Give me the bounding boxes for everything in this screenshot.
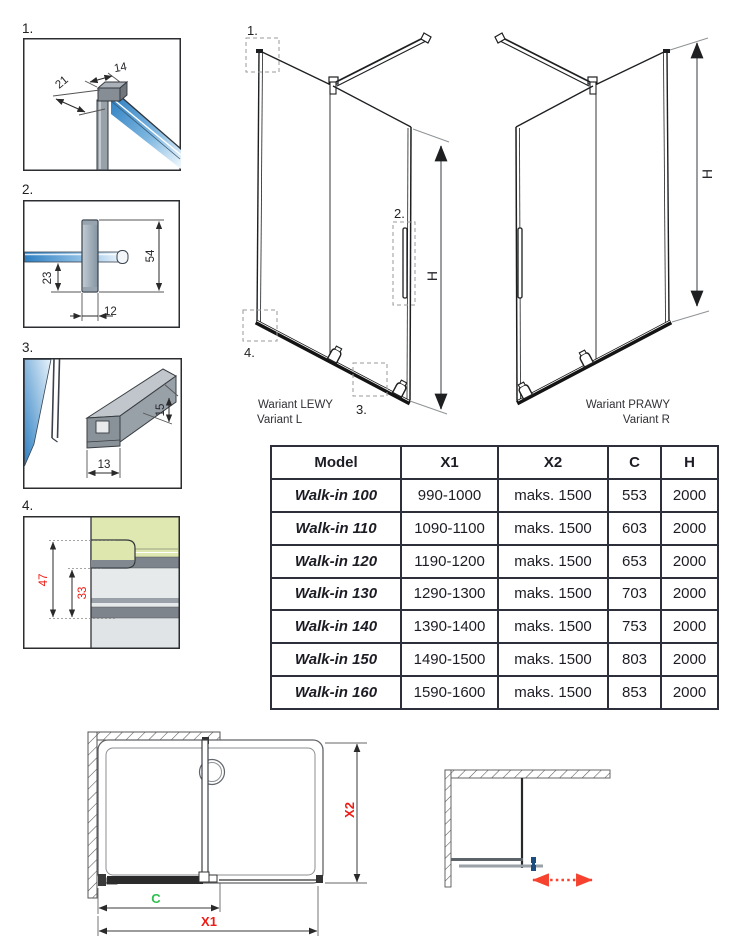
model-cell: Walk-in 140 (271, 610, 401, 643)
h-cell: 2000 (661, 643, 718, 676)
handle-bar (82, 220, 98, 292)
variant-right-caption-pl: Wariant PRAWY (586, 399, 670, 411)
detail-4-number: 4. (22, 498, 33, 513)
c-cell: 853 (608, 676, 661, 709)
h-cell: 2000 (661, 578, 718, 611)
detail-3-figure: 15 13 (23, 358, 182, 489)
dim-bar-width: 12 (104, 306, 117, 318)
technical-sheet: 1. 2. 3. 4. 14 21 (0, 0, 747, 948)
roller (578, 349, 594, 367)
glass-end-cap (117, 251, 128, 264)
glass-panel (25, 252, 120, 262)
col-header-h: H (661, 446, 718, 479)
x2-cell: maks. 1500 (498, 545, 608, 578)
dim-rail-width: 13 (98, 459, 111, 471)
support-bar (501, 37, 590, 82)
rail-wall-bracket (98, 874, 106, 886)
rail-slot (96, 421, 109, 433)
detail-1-figure: 14 21 (23, 38, 181, 171)
table-row: Walk-in 160 1590-1600 maks. 1500 853 200… (271, 676, 718, 709)
dim-lower-height: 23 (42, 272, 54, 285)
variant-right-caption-en: Variant R (623, 414, 670, 426)
dim-c-label: C (151, 891, 161, 906)
door-handle (518, 228, 522, 298)
height-dimension-label: H (424, 271, 440, 281)
c-cell: 553 (608, 479, 661, 512)
marker-2: 2. (394, 206, 405, 221)
height-dimension-label: H (699, 169, 715, 179)
detail-4-figure: 47 33 (23, 516, 180, 649)
dim-total-height: 54 (145, 249, 157, 262)
roller (517, 381, 533, 399)
support-bar-wall-mount (421, 33, 431, 43)
c-cell: 803 (608, 643, 661, 676)
door-handle (403, 228, 407, 298)
marker-1: 1. (247, 23, 258, 38)
variant-left-caption-pl: Wariant LEWY (258, 399, 333, 411)
x1-cell: 1590-1600 (401, 676, 498, 709)
col-header-model: Model (271, 446, 401, 479)
c-cell: 703 (608, 578, 661, 611)
x2-cell: maks. 1500 (498, 512, 608, 545)
detail-2-number: 2. (22, 182, 33, 197)
table-row: Walk-in 100 990-1000 maks. 1500 553 2000 (271, 479, 718, 512)
model-cell: Walk-in 100 (271, 479, 401, 512)
x1-cell: 990-1000 (401, 479, 498, 512)
x2-cell: maks. 1500 (498, 610, 608, 643)
wall-top (88, 732, 220, 740)
wall-left (88, 732, 97, 898)
model-cell: Walk-in 160 (271, 676, 401, 709)
detail-2-figure: 54 23 12 (23, 200, 180, 328)
x2-cell: maks. 1500 (498, 643, 608, 676)
rail-plan (107, 876, 203, 884)
variant-left-caption-en: Variant L (257, 414, 303, 426)
support-bar (336, 37, 425, 82)
roller-housing (199, 872, 209, 882)
x1-cell: 1390-1400 (401, 610, 498, 643)
c-cell: 653 (608, 545, 661, 578)
marker-3: 3. (356, 402, 367, 417)
dim-outer-height: 47 (38, 574, 50, 587)
side-wall (445, 770, 451, 887)
dimension-table: Model X1 X2 C H Walk-in 100 990-1000 mak… (270, 445, 719, 710)
x2-cell: maks. 1500 (498, 676, 608, 709)
plan-view-figure: C X1 X2 (55, 720, 400, 948)
h-cell: 2000 (661, 479, 718, 512)
support-bar-wall-mount (495, 33, 505, 43)
x2-cell: maks. 1500 (498, 578, 608, 611)
col-header-x1: X1 (401, 446, 498, 479)
x1-cell: 1290-1300 (401, 578, 498, 611)
detail-1-number: 1. (22, 21, 33, 36)
table-row: Walk-in 120 1190-1200 maks. 1500 653 200… (271, 545, 718, 578)
section-bands (91, 517, 179, 648)
dim-x1-label: X1 (201, 914, 217, 929)
detail-3-number: 3. (22, 340, 33, 355)
model-cell: Walk-in 130 (271, 578, 401, 611)
rail-end-cap (316, 875, 323, 883)
h-cell: 2000 (661, 610, 718, 643)
h-cell: 2000 (661, 676, 718, 709)
variant-left-figure: 1. 2. 3. 4. H Wariant LEWY Variant L (230, 10, 480, 430)
roller-clamp (531, 857, 536, 871)
model-cell: Walk-in 120 (271, 545, 401, 578)
x1-cell: 1490-1500 (401, 643, 498, 676)
roller (393, 379, 409, 397)
table-header-row: Model X1 X2 C H (271, 446, 718, 479)
support-bar-plan (202, 740, 208, 880)
ceiling-wall (445, 770, 610, 778)
table-row: Walk-in 110 1090-1100 maks. 1500 603 200… (271, 512, 718, 545)
model-cell: Walk-in 110 (271, 512, 401, 545)
table-row: Walk-in 150 1490-1500 maks. 1500 803 200… (271, 643, 718, 676)
bottom-rail (256, 322, 410, 403)
x1-cell: 1190-1200 (401, 545, 498, 578)
table-row: Walk-in 130 1290-1300 maks. 1500 703 200… (271, 578, 718, 611)
dim-inner-height: 33 (77, 587, 89, 600)
c-cell: 753 (608, 610, 661, 643)
side-view-figure (430, 760, 640, 895)
x2-cell: maks. 1500 (498, 479, 608, 512)
profile-cap (98, 88, 120, 101)
marker-4: 4. (244, 345, 255, 360)
dim-x2-label: X2 (342, 802, 357, 818)
dim-rail-height: 15 (155, 404, 167, 417)
h-cell: 2000 (661, 512, 718, 545)
variant-right-figure: H Wariant PRAWY Variant R (470, 10, 747, 430)
x1-cell: 1090-1100 (401, 512, 498, 545)
model-cell: Walk-in 150 (271, 643, 401, 676)
c-cell: 603 (608, 512, 661, 545)
col-header-c: C (608, 446, 661, 479)
col-header-x2: X2 (498, 446, 608, 479)
table-row: Walk-in 140 1390-1400 maks. 1500 753 200… (271, 610, 718, 643)
h-cell: 2000 (661, 545, 718, 578)
